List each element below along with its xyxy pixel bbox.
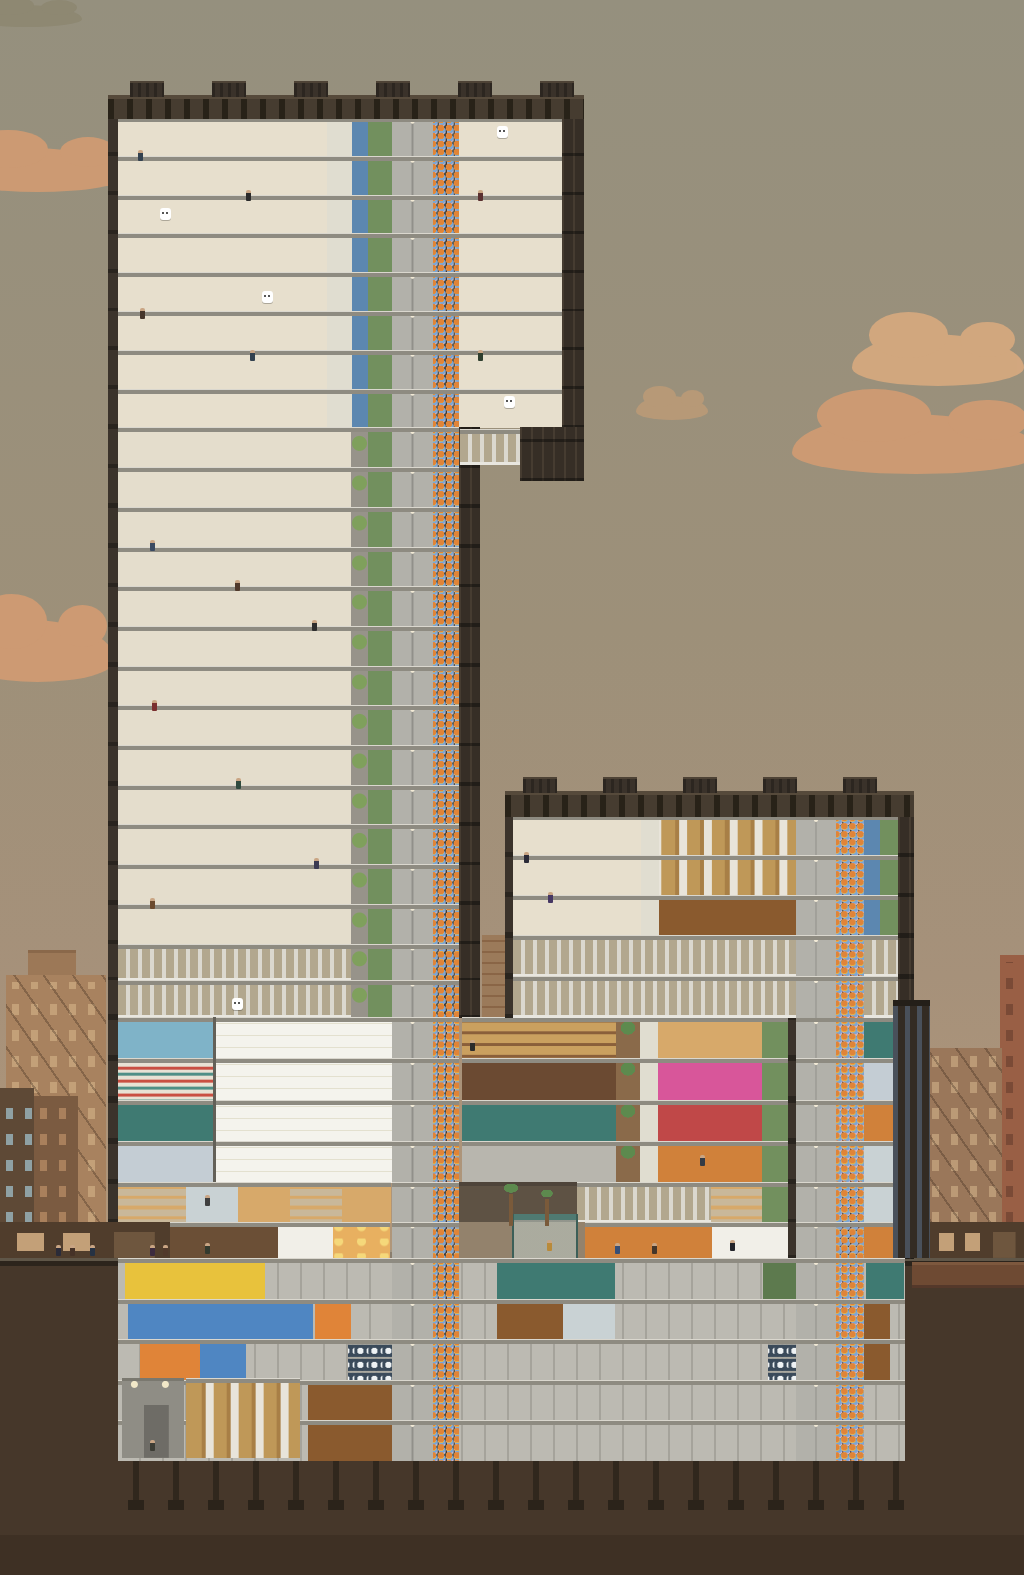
room-elevator[interactable] bbox=[796, 895, 836, 936]
room-riser[interactable] bbox=[433, 586, 459, 626]
room-break[interactable] bbox=[497, 1258, 615, 1299]
room-riser[interactable] bbox=[836, 1141, 864, 1183]
room-riser[interactable] bbox=[433, 980, 459, 1017]
room-riser[interactable] bbox=[433, 1420, 459, 1461]
room-aliv[interactable] bbox=[118, 156, 172, 195]
room-elec[interactable] bbox=[125, 1258, 265, 1299]
room-riser[interactable] bbox=[836, 1339, 864, 1380]
room-aliv[interactable] bbox=[118, 389, 172, 428]
room-elevator[interactable] bbox=[392, 1222, 433, 1259]
person[interactable] bbox=[547, 1240, 552, 1251]
room-studio[interactable] bbox=[275, 864, 351, 904]
room-elevator[interactable] bbox=[392, 156, 433, 195]
room-aliv[interactable] bbox=[513, 895, 576, 936]
room-palmcell[interactable] bbox=[616, 1058, 640, 1100]
room-trash[interactable] bbox=[762, 1182, 788, 1223]
room-abed[interactable] bbox=[511, 117, 562, 156]
room-riser[interactable] bbox=[433, 389, 459, 428]
room-kitchen-teal[interactable] bbox=[563, 1299, 615, 1340]
room-riser[interactable] bbox=[836, 815, 864, 856]
room-riser[interactable] bbox=[433, 1258, 459, 1299]
room-abed[interactable] bbox=[276, 117, 327, 156]
room-aliv[interactable] bbox=[459, 156, 511, 195]
room-studio[interactable] bbox=[118, 864, 197, 904]
room-abed[interactable] bbox=[172, 117, 223, 156]
room-mech[interactable] bbox=[864, 935, 898, 977]
room-trash[interactable] bbox=[880, 855, 898, 896]
room-riser[interactable] bbox=[433, 233, 459, 272]
room-aliv[interactable] bbox=[118, 233, 172, 272]
room-empty[interactable] bbox=[213, 1017, 392, 1059]
room-trash[interactable] bbox=[368, 467, 392, 507]
person[interactable] bbox=[70, 1245, 75, 1256]
room-aliv[interactable] bbox=[459, 350, 511, 389]
room-office[interactable] bbox=[585, 1222, 712, 1259]
room-mech[interactable] bbox=[118, 944, 351, 981]
room-elevator[interactable] bbox=[392, 944, 433, 981]
room-bar-teal[interactable] bbox=[238, 1182, 290, 1223]
room-riser[interactable] bbox=[836, 1100, 864, 1142]
person[interactable] bbox=[163, 1245, 168, 1256]
room-riser[interactable] bbox=[433, 944, 459, 981]
person[interactable] bbox=[205, 1243, 210, 1254]
room-elevator[interactable] bbox=[392, 1258, 433, 1299]
person[interactable] bbox=[152, 700, 157, 711]
room-riser[interactable] bbox=[433, 350, 459, 389]
room-abed[interactable] bbox=[576, 855, 641, 896]
room-riser[interactable] bbox=[433, 705, 459, 745]
room-utilb[interactable] bbox=[352, 233, 368, 272]
room-palmcell[interactable] bbox=[616, 1100, 640, 1142]
room-vending[interactable] bbox=[866, 1258, 904, 1299]
room-utilb[interactable] bbox=[864, 855, 880, 896]
room-elevator[interactable] bbox=[392, 350, 433, 389]
room-abed[interactable] bbox=[276, 389, 327, 428]
room-studio[interactable] bbox=[118, 586, 197, 626]
room-elevator[interactable] bbox=[796, 1380, 836, 1421]
room-riser[interactable] bbox=[836, 855, 864, 896]
room-abed[interactable] bbox=[511, 233, 562, 272]
room-waiting[interactable] bbox=[462, 1100, 616, 1142]
room-studio[interactable] bbox=[118, 705, 197, 745]
room-riser[interactable] bbox=[433, 666, 459, 706]
person[interactable] bbox=[235, 580, 240, 591]
room-aliv[interactable] bbox=[459, 311, 511, 350]
room-studio[interactable] bbox=[275, 745, 351, 785]
room-utilb[interactable] bbox=[864, 815, 880, 856]
room-aliv[interactable] bbox=[223, 389, 276, 428]
room-elevator[interactable] bbox=[392, 904, 433, 944]
room-elevator[interactable] bbox=[392, 272, 433, 311]
room-abed[interactable] bbox=[511, 195, 562, 234]
room-riser[interactable] bbox=[433, 824, 459, 864]
room-elevator[interactable] bbox=[392, 389, 433, 428]
room-studio[interactable] bbox=[118, 427, 197, 467]
room-studio[interactable] bbox=[118, 904, 197, 944]
room-riser[interactable] bbox=[836, 1299, 864, 1340]
room-empty[interactable] bbox=[213, 1058, 392, 1100]
person[interactable] bbox=[478, 350, 483, 361]
person[interactable] bbox=[730, 1240, 735, 1251]
room-riser[interactable] bbox=[433, 427, 459, 467]
room-studio[interactable] bbox=[197, 626, 275, 666]
person[interactable] bbox=[56, 1245, 61, 1256]
person[interactable] bbox=[652, 1243, 657, 1254]
room-trash[interactable] bbox=[368, 864, 392, 904]
room-aliv[interactable] bbox=[513, 815, 576, 856]
room-trash[interactable] bbox=[368, 117, 392, 156]
room-trash[interactable] bbox=[368, 586, 392, 626]
person[interactable] bbox=[548, 892, 553, 903]
person[interactable] bbox=[246, 190, 251, 201]
room-trash[interactable] bbox=[368, 272, 392, 311]
room-aliv[interactable] bbox=[118, 272, 172, 311]
room-elevator[interactable] bbox=[392, 1017, 433, 1059]
room-water[interactable] bbox=[128, 1299, 223, 1340]
room-studio[interactable] bbox=[197, 666, 275, 706]
room-abed[interactable] bbox=[172, 389, 223, 428]
room-trash[interactable] bbox=[880, 815, 898, 856]
room-elevator[interactable] bbox=[392, 864, 433, 904]
room-elevator[interactable] bbox=[392, 745, 433, 785]
person[interactable] bbox=[236, 778, 241, 789]
room-store-teal[interactable] bbox=[290, 1182, 342, 1223]
room-riser[interactable] bbox=[836, 1182, 864, 1223]
room-riser[interactable] bbox=[433, 1380, 459, 1421]
room-studio[interactable] bbox=[275, 666, 351, 706]
room-aliv[interactable] bbox=[513, 855, 576, 896]
room-riser[interactable] bbox=[433, 864, 459, 904]
room-trash[interactable] bbox=[368, 904, 392, 944]
room-elevator[interactable] bbox=[392, 117, 433, 156]
room-elevator[interactable] bbox=[796, 855, 836, 896]
room-riser[interactable] bbox=[433, 507, 459, 547]
room-elevator[interactable] bbox=[392, 1420, 433, 1461]
room-trash[interactable] bbox=[368, 233, 392, 272]
room-trash[interactable] bbox=[368, 156, 392, 195]
room-workshop[interactable] bbox=[659, 895, 796, 936]
room-elevator[interactable] bbox=[392, 1100, 433, 1142]
room-studio[interactable] bbox=[275, 626, 351, 666]
room-lab[interactable] bbox=[118, 1141, 213, 1183]
room-trash[interactable] bbox=[368, 195, 392, 234]
room-elevator[interactable] bbox=[796, 935, 836, 977]
room-trash[interactable] bbox=[368, 980, 392, 1017]
room-abed[interactable] bbox=[576, 815, 641, 856]
room-abed[interactable] bbox=[172, 156, 223, 195]
room-studio[interactable] bbox=[275, 507, 351, 547]
room-utilb[interactable] bbox=[352, 350, 368, 389]
room-riser[interactable] bbox=[433, 1222, 459, 1259]
room-studio[interactable] bbox=[197, 864, 275, 904]
room-elevator[interactable] bbox=[392, 705, 433, 745]
room-studio[interactable] bbox=[197, 507, 275, 547]
person[interactable] bbox=[615, 1243, 620, 1254]
room-elevator[interactable] bbox=[392, 626, 433, 666]
room-trash[interactable] bbox=[368, 626, 392, 666]
person[interactable] bbox=[90, 1245, 95, 1256]
room-elevator[interactable] bbox=[392, 427, 433, 467]
room-crates[interactable] bbox=[659, 815, 796, 856]
room-elevator[interactable] bbox=[392, 1141, 433, 1183]
room-store-teal[interactable] bbox=[711, 1182, 762, 1223]
room-aliv[interactable] bbox=[459, 272, 511, 311]
person[interactable] bbox=[140, 308, 145, 319]
room-elevator[interactable] bbox=[392, 980, 433, 1017]
person[interactable] bbox=[150, 540, 155, 551]
room-studio[interactable] bbox=[197, 705, 275, 745]
room-aliv[interactable] bbox=[459, 195, 511, 234]
person[interactable] bbox=[150, 898, 155, 909]
room-elevator[interactable] bbox=[392, 311, 433, 350]
room-mech[interactable] bbox=[577, 1182, 711, 1223]
room-elevator[interactable] bbox=[392, 1182, 433, 1223]
room-riser[interactable] bbox=[433, 156, 459, 195]
room-trash[interactable] bbox=[762, 1141, 788, 1183]
room-riser[interactable] bbox=[836, 895, 864, 936]
room-boutique[interactable] bbox=[462, 1058, 616, 1100]
room-aliv[interactable] bbox=[459, 389, 511, 428]
room-trash[interactable] bbox=[368, 785, 392, 825]
room-studio[interactable] bbox=[118, 666, 197, 706]
room-trash[interactable] bbox=[762, 1058, 788, 1100]
room-workshop[interactable] bbox=[308, 1420, 392, 1461]
room-abed[interactable] bbox=[276, 233, 327, 272]
room-elevator[interactable] bbox=[392, 824, 433, 864]
room-elevator[interactable] bbox=[796, 1339, 836, 1380]
person[interactable] bbox=[470, 1040, 475, 1051]
room-trash[interactable] bbox=[762, 1100, 788, 1142]
room-water[interactable] bbox=[223, 1299, 313, 1340]
room-heat[interactable] bbox=[140, 1339, 200, 1380]
room-studio[interactable] bbox=[197, 785, 275, 825]
room-elevator[interactable] bbox=[796, 1299, 836, 1340]
person[interactable] bbox=[150, 1440, 155, 1451]
room-water[interactable] bbox=[200, 1339, 246, 1380]
room-studio[interactable] bbox=[275, 785, 351, 825]
room-riser[interactable] bbox=[433, 1182, 459, 1223]
room-trash[interactable] bbox=[368, 824, 392, 864]
room-riser[interactable] bbox=[836, 976, 864, 1018]
room-diner-red[interactable] bbox=[658, 1100, 762, 1142]
room-riser[interactable] bbox=[836, 1420, 864, 1461]
room-trash[interactable] bbox=[368, 745, 392, 785]
room-utilb[interactable] bbox=[352, 272, 368, 311]
room-studio[interactable] bbox=[118, 824, 197, 864]
room-elevator[interactable] bbox=[392, 1380, 433, 1421]
room-heat[interactable] bbox=[315, 1299, 351, 1340]
room-riser[interactable] bbox=[836, 1017, 864, 1059]
room-bagshop[interactable] bbox=[462, 1017, 616, 1059]
room-riser[interactable] bbox=[433, 547, 459, 587]
person[interactable] bbox=[314, 858, 319, 869]
room-trash[interactable] bbox=[368, 311, 392, 350]
person[interactable] bbox=[524, 852, 529, 863]
room-store-teal[interactable] bbox=[118, 1182, 186, 1223]
room-pharmacy[interactable] bbox=[118, 1058, 213, 1100]
room-abed[interactable] bbox=[172, 311, 223, 350]
room-riser[interactable] bbox=[836, 935, 864, 977]
room-trash[interactable] bbox=[368, 350, 392, 389]
room-abed[interactable] bbox=[576, 895, 641, 936]
room-diner-pink[interactable] bbox=[658, 1058, 762, 1100]
room-studio[interactable] bbox=[275, 427, 351, 467]
room-aliv[interactable] bbox=[118, 117, 172, 156]
room-elevator[interactable] bbox=[796, 1141, 836, 1183]
room-riser[interactable] bbox=[433, 1141, 459, 1183]
room-abed[interactable] bbox=[276, 272, 327, 311]
room-utilb[interactable] bbox=[864, 895, 880, 936]
room-riser[interactable] bbox=[836, 1380, 864, 1421]
room-bar-teal[interactable] bbox=[658, 1017, 762, 1059]
room-abed[interactable] bbox=[276, 350, 327, 389]
room-studio[interactable] bbox=[118, 626, 197, 666]
room-elevator[interactable] bbox=[392, 233, 433, 272]
room-abed[interactable] bbox=[276, 311, 327, 350]
room-abed[interactable] bbox=[276, 195, 327, 234]
room-studio[interactable] bbox=[197, 586, 275, 626]
room-cafe-orange[interactable] bbox=[658, 1141, 762, 1183]
person[interactable] bbox=[150, 1245, 155, 1256]
room-elevator[interactable] bbox=[796, 1420, 836, 1461]
room-riser[interactable] bbox=[836, 1058, 864, 1100]
room-riser[interactable] bbox=[433, 272, 459, 311]
room-riser[interactable] bbox=[433, 745, 459, 785]
room-abed[interactable] bbox=[276, 156, 327, 195]
room-studio[interactable] bbox=[275, 824, 351, 864]
room-mech[interactable] bbox=[513, 976, 796, 1018]
room-elevator[interactable] bbox=[796, 1100, 836, 1142]
room-abed[interactable] bbox=[172, 195, 223, 234]
room-abed[interactable] bbox=[172, 272, 223, 311]
room-elevator[interactable] bbox=[392, 507, 433, 547]
person[interactable] bbox=[138, 150, 143, 161]
room-studio[interactable] bbox=[118, 467, 197, 507]
room-riser[interactable] bbox=[433, 195, 459, 234]
room-aliv[interactable] bbox=[223, 233, 276, 272]
room-abed[interactable] bbox=[172, 233, 223, 272]
room-bar-teal[interactable] bbox=[342, 1182, 391, 1223]
room-studio[interactable] bbox=[118, 507, 197, 547]
room-trash[interactable] bbox=[368, 427, 392, 467]
room-aliv[interactable] bbox=[223, 311, 276, 350]
room-riser[interactable] bbox=[433, 467, 459, 507]
room-elevator[interactable] bbox=[392, 467, 433, 507]
room-studio[interactable] bbox=[118, 785, 197, 825]
room-riser[interactable] bbox=[433, 311, 459, 350]
room-medical[interactable] bbox=[118, 1017, 213, 1059]
room-studio[interactable] bbox=[197, 467, 275, 507]
room-elevator[interactable] bbox=[392, 586, 433, 626]
room-utilb[interactable] bbox=[352, 389, 368, 428]
room-appliance[interactable] bbox=[462, 1141, 616, 1183]
room-abed[interactable] bbox=[511, 389, 562, 428]
room-palmcell[interactable] bbox=[616, 1141, 640, 1183]
room-riser[interactable] bbox=[433, 1299, 459, 1340]
room-trash[interactable] bbox=[368, 666, 392, 706]
person[interactable] bbox=[700, 1155, 705, 1166]
room-aliv[interactable] bbox=[118, 350, 172, 389]
room-trash[interactable] bbox=[368, 705, 392, 745]
room-vending[interactable] bbox=[118, 1100, 213, 1142]
room-elevator[interactable] bbox=[392, 785, 433, 825]
room-elevator[interactable] bbox=[796, 1182, 836, 1223]
room-kitchen-teal[interactable] bbox=[186, 1182, 238, 1223]
room-barber[interactable] bbox=[333, 1222, 390, 1259]
room-trash[interactable] bbox=[880, 895, 898, 936]
room-elevator[interactable] bbox=[392, 1339, 433, 1380]
room-abed[interactable] bbox=[172, 350, 223, 389]
room-workshop[interactable] bbox=[497, 1299, 563, 1340]
room-riser[interactable] bbox=[836, 1222, 864, 1259]
room-studio[interactable] bbox=[275, 705, 351, 745]
room-studio[interactable] bbox=[197, 427, 275, 467]
person[interactable] bbox=[205, 1195, 210, 1206]
room-elevator[interactable] bbox=[796, 1058, 836, 1100]
room-elevator[interactable] bbox=[796, 1017, 836, 1059]
room-trash[interactable] bbox=[368, 389, 392, 428]
room-studio[interactable] bbox=[118, 547, 197, 587]
room-elevator[interactable] bbox=[796, 815, 836, 856]
room-studio[interactable] bbox=[275, 467, 351, 507]
room-studio[interactable] bbox=[275, 904, 351, 944]
room-mech[interactable] bbox=[513, 935, 796, 977]
room-riser[interactable] bbox=[433, 1058, 459, 1100]
room-aliv[interactable] bbox=[223, 117, 276, 156]
room-riser[interactable] bbox=[836, 1258, 864, 1299]
room-riser[interactable] bbox=[433, 904, 459, 944]
room-utilb[interactable] bbox=[352, 311, 368, 350]
room-abed[interactable] bbox=[511, 272, 562, 311]
room-crates[interactable] bbox=[659, 855, 796, 896]
room-aliv[interactable] bbox=[118, 311, 172, 350]
room-laundry[interactable] bbox=[348, 1339, 392, 1380]
room-riser[interactable] bbox=[433, 117, 459, 156]
person[interactable] bbox=[250, 350, 255, 361]
room-elevator[interactable] bbox=[392, 195, 433, 234]
room-abed[interactable] bbox=[511, 156, 562, 195]
room-studio[interactable] bbox=[197, 824, 275, 864]
room-utilb[interactable] bbox=[352, 156, 368, 195]
room-elevator[interactable] bbox=[392, 1058, 433, 1100]
room-studio[interactable] bbox=[275, 547, 351, 587]
room-trash[interactable] bbox=[368, 507, 392, 547]
storage-shelves[interactable] bbox=[186, 1378, 300, 1458]
room-palmcell[interactable] bbox=[616, 1017, 640, 1059]
room-utilb[interactable] bbox=[352, 117, 368, 156]
room-empty[interactable] bbox=[213, 1100, 392, 1142]
room-riser[interactable] bbox=[433, 1339, 459, 1380]
person[interactable] bbox=[312, 620, 317, 631]
room-riser[interactable] bbox=[433, 1017, 459, 1059]
room-abed[interactable] bbox=[511, 311, 562, 350]
room-studio[interactable] bbox=[197, 904, 275, 944]
room-elevator[interactable] bbox=[796, 1258, 836, 1299]
room-riser[interactable] bbox=[433, 785, 459, 825]
room-workshop[interactable] bbox=[308, 1380, 392, 1421]
room-elevator[interactable] bbox=[392, 547, 433, 587]
room-riser[interactable] bbox=[433, 626, 459, 666]
room-trash[interactable] bbox=[368, 547, 392, 587]
room-abed[interactable] bbox=[511, 350, 562, 389]
room-empty[interactable] bbox=[213, 1141, 392, 1183]
room-aliv[interactable] bbox=[459, 233, 511, 272]
room-studio[interactable] bbox=[118, 745, 197, 785]
room-trash[interactable] bbox=[368, 944, 392, 981]
person[interactable] bbox=[478, 190, 483, 201]
room-lobby[interactable] bbox=[170, 1222, 278, 1259]
room-riser[interactable] bbox=[433, 1100, 459, 1142]
